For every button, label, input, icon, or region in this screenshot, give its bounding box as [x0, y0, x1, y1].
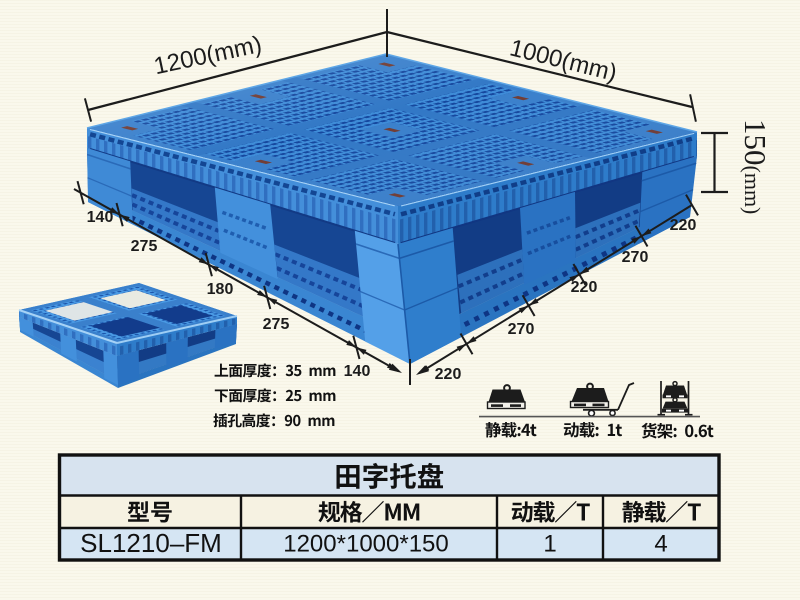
- svg-text:220: 220: [670, 217, 697, 234]
- svg-text:1200*1000*150: 1200*1000*150: [283, 531, 449, 558]
- svg-text:1: 1: [543, 531, 556, 558]
- svg-text:275: 275: [131, 238, 158, 255]
- svg-text:140: 140: [87, 209, 114, 226]
- svg-text:1000(mm): 1000(mm): [507, 34, 620, 87]
- svg-text:150(mm): 150(mm): [738, 119, 773, 214]
- svg-text:270: 270: [622, 249, 649, 266]
- svg-text:275: 275: [263, 316, 290, 333]
- svg-text:SL1210–FM: SL1210–FM: [80, 528, 222, 558]
- svg-text:220: 220: [435, 366, 462, 383]
- svg-text:270: 270: [508, 321, 535, 338]
- svg-text:220: 220: [571, 279, 598, 296]
- svg-text:1200(mm): 1200(mm): [152, 31, 265, 80]
- svg-text:180: 180: [207, 281, 234, 298]
- svg-text:140: 140: [344, 363, 371, 380]
- svg-text:4: 4: [654, 531, 667, 558]
